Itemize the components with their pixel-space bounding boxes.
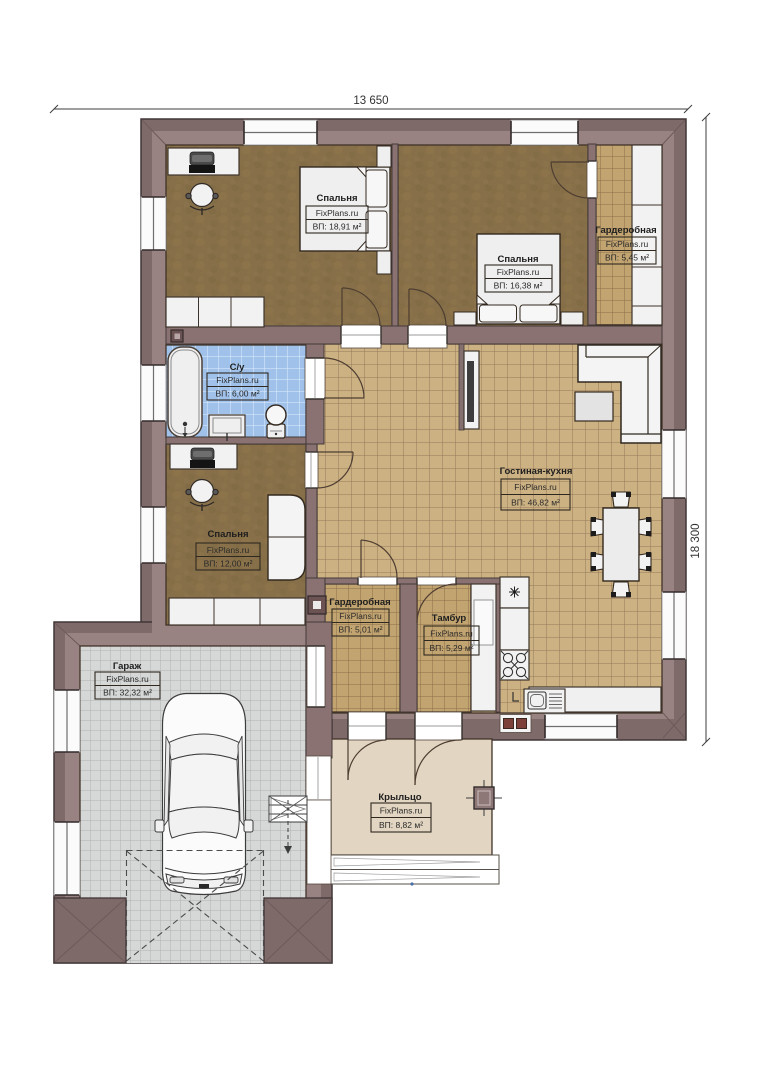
svg-text:ВП: 18,91 м²: ВП: 18,91 м² xyxy=(313,222,362,232)
svg-text:Гостиная-кухня: Гостиная-кухня xyxy=(500,466,573,477)
svg-text:Спальня: Спальня xyxy=(497,254,538,265)
svg-text:13 650: 13 650 xyxy=(353,95,388,107)
svg-text:ВП: 46,82 м²: ВП: 46,82 м² xyxy=(511,498,560,508)
svg-text:С/у: С/у xyxy=(230,362,246,373)
svg-text:FixPlans.ru: FixPlans.ru xyxy=(430,629,473,639)
svg-text:ВП: 16,38 м²: ВП: 16,38 м² xyxy=(494,281,543,291)
svg-text:ВП: 5,01 м²: ВП: 5,01 м² xyxy=(338,625,382,635)
svg-text:Спальня: Спальня xyxy=(207,529,248,540)
svg-text:ВП: 5,29 м²: ВП: 5,29 м² xyxy=(429,643,473,653)
svg-text:Гараж: Гараж xyxy=(113,661,142,672)
svg-text:FixPlans.ru: FixPlans.ru xyxy=(316,208,359,218)
svg-text:FixPlans.ru: FixPlans.ru xyxy=(514,482,557,492)
svg-text:Крыльцо: Крыльцо xyxy=(378,792,421,803)
svg-text:ВП: 12,00 м²: ВП: 12,00 м² xyxy=(204,559,253,569)
svg-text:FixPlans.ru: FixPlans.ru xyxy=(207,545,250,555)
svg-text:Тамбур: Тамбур xyxy=(432,613,467,624)
svg-text:ВП: 32,32 м²: ВП: 32,32 м² xyxy=(103,688,152,698)
svg-text:18 300: 18 300 xyxy=(690,523,702,558)
svg-text:FixPlans.ru: FixPlans.ru xyxy=(106,674,149,684)
svg-text:FixPlans.ru: FixPlans.ru xyxy=(339,611,382,621)
svg-text:FixPlans.ru: FixPlans.ru xyxy=(380,806,423,816)
svg-text:Гардеробная: Гардеробная xyxy=(329,597,390,608)
svg-text:Гардеробная: Гардеробная xyxy=(595,225,656,236)
svg-text:ВП: 6,00 м²: ВП: 6,00 м² xyxy=(215,389,259,399)
svg-text:Спальня: Спальня xyxy=(316,193,357,204)
svg-text:FixPlans.ru: FixPlans.ru xyxy=(606,239,649,249)
svg-text:FixPlans.ru: FixPlans.ru xyxy=(497,267,540,277)
svg-text:ВП: 5,45 м²: ВП: 5,45 м² xyxy=(605,253,649,263)
svg-text:ВП: 8,82 м²: ВП: 8,82 м² xyxy=(379,820,423,830)
svg-text:FixPlans.ru: FixPlans.ru xyxy=(216,375,259,385)
